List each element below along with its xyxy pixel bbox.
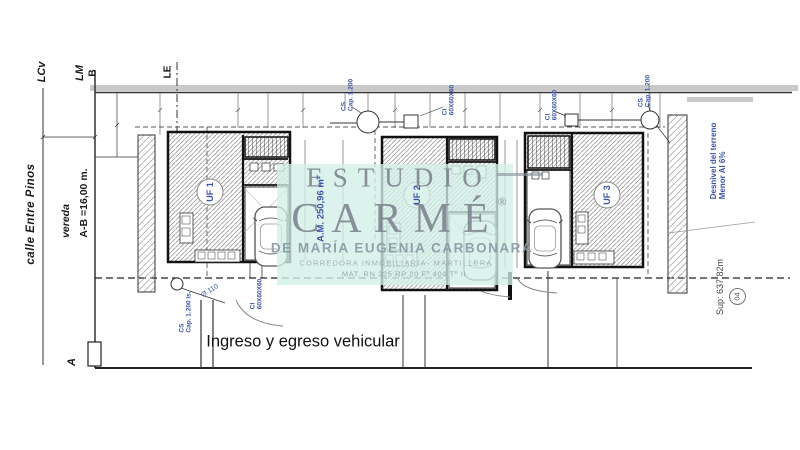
unit-area-note: A.M. 250,96 m² bbox=[316, 176, 327, 242]
frontage-dimension-label: A-B =16,00 m. bbox=[78, 168, 90, 237]
unit-label-uf2: UF 2 bbox=[412, 185, 422, 205]
floor-plan-sheet: ESTUDIO CARMÉ ® DE MARÍA EUGENIA CARBONA… bbox=[0, 0, 800, 450]
line-label-le: LE bbox=[163, 66, 174, 79]
watermark-license: MAT. RN 325 RP 20 Fº 404 Tº II bbox=[342, 270, 466, 279]
watermark-studio: ESTUDIO bbox=[306, 163, 492, 194]
unit-label-uf1: UF 1 bbox=[205, 182, 215, 202]
unit-label-uf3: UF 3 bbox=[602, 185, 612, 205]
septic-label-top: CS Cap. 1.200 bbox=[341, 79, 356, 111]
street-name-label: calle Entre Pinos bbox=[25, 163, 37, 264]
right-hatched-strip bbox=[668, 115, 687, 293]
septic-label-front: CS Cap. 1.200 ls. bbox=[179, 291, 194, 332]
line-label-lm: LM bbox=[74, 65, 86, 81]
inspection-label-front: CI 60X60X60 bbox=[250, 279, 265, 309]
watermark-role: CORREDORA INMOBILIARIA- MARTILLERA bbox=[299, 259, 492, 268]
watermark-owner: DE MARÍA EUGENIA CARBONARA bbox=[271, 241, 533, 256]
left-hatched-strip bbox=[138, 135, 155, 292]
lot-area-label: Sup: 637,82m bbox=[715, 259, 725, 315]
terrain-slope-note: Desnivel del terreno Menor Al 6% bbox=[710, 123, 728, 199]
registered-mark-icon: ® bbox=[497, 195, 506, 210]
sheet-number-badge: 04 bbox=[729, 288, 746, 305]
inspection-label-top: CI 60X60X60 bbox=[442, 85, 457, 115]
line-label-b: B bbox=[88, 69, 99, 76]
inspection-label-right: CI 60X60X60 bbox=[545, 90, 560, 120]
sidewalk-label: vereda bbox=[60, 204, 72, 238]
line-label-a: A bbox=[66, 358, 78, 366]
line-label-lcv: LCv bbox=[36, 62, 48, 83]
septic-label-right: CS Cap. 1.200 bbox=[638, 75, 653, 107]
watermark-flourish bbox=[497, 173, 543, 176]
vehicle-entry-note: Ingreso y egreso vehicular bbox=[206, 333, 400, 352]
